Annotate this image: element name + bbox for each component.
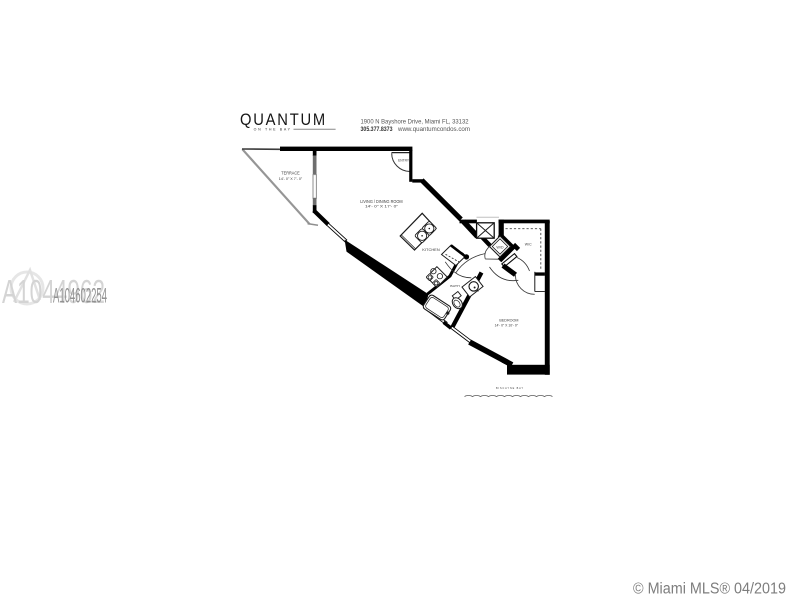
svg-text:14'- 0" X 10'- 0": 14'- 0" X 10'- 0" [495,323,519,327]
svg-text:© Miami MLS® 04/2019: © Miami MLS® 04/2019 [633,581,786,598]
svg-text:www.quantumcondos.com: www.quantumcondos.com [397,126,470,133]
svg-text:14'- 0" X 17'- 0": 14'- 0" X 17'- 0" [365,203,399,208]
svg-text:BATH: BATH [450,284,460,288]
svg-text:QUANTUM: QUANTUM [240,111,327,129]
svg-text:14'- 0" X 7'- 0": 14'- 0" X 7'- 0" [279,176,303,181]
svg-text:ON THE BAY: ON THE BAY [254,127,292,131]
svg-text:305.377.8373: 305.377.8373 [361,126,393,133]
svg-text:ENTRY: ENTRY [398,159,410,163]
svg-text:W/D: W/D [496,245,504,249]
svg-text:BISCAYNE BAY: BISCAYNE BAY [496,386,524,390]
svg-text:W/C: W/C [525,242,532,246]
svg-text:KITCHEN: KITCHEN [422,247,440,252]
svg-text:1900 N Bayshore Drive, Miami F: 1900 N Bayshore Drive, Miami FL, 33132 [361,119,470,126]
svg-text:A104602254: A104602254 [53,284,107,308]
svg-text:BEDROOM: BEDROOM [499,317,518,322]
